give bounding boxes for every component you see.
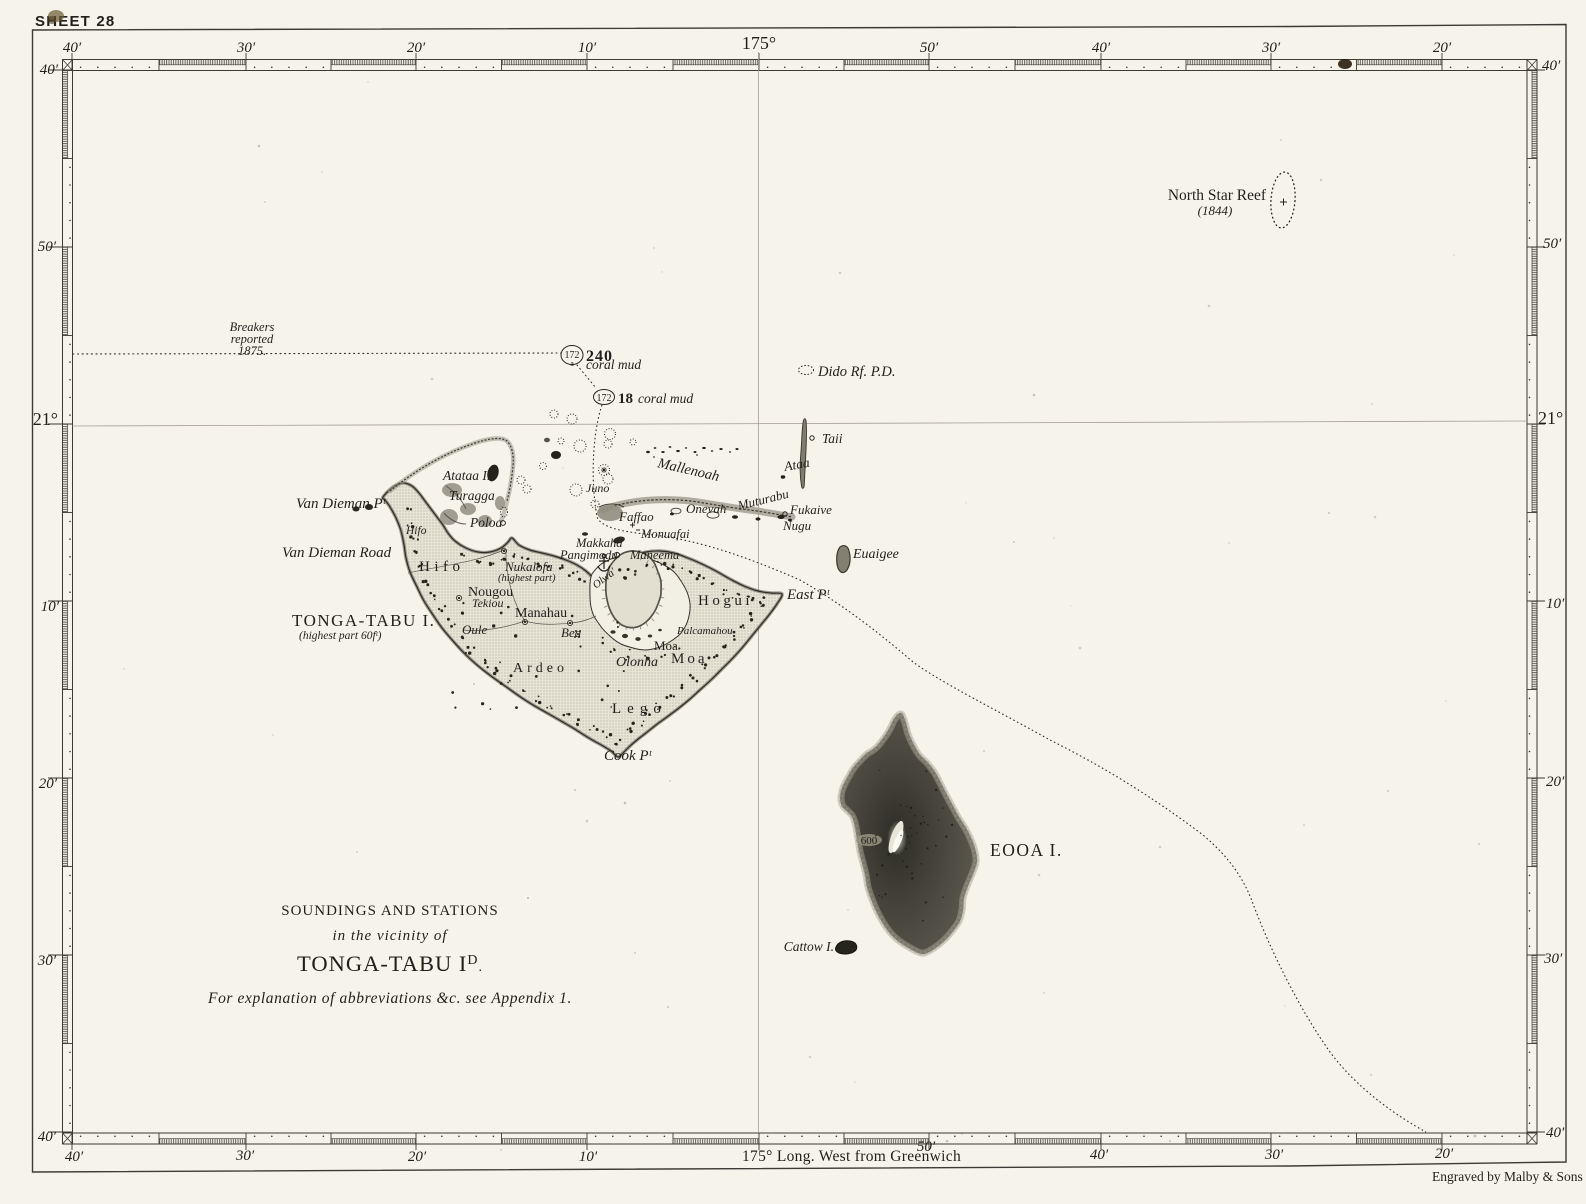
svg-text:Onevah: Onevah bbox=[686, 501, 726, 516]
svg-text:21°: 21° bbox=[1538, 408, 1563, 428]
svg-text:(1844): (1844) bbox=[1198, 203, 1233, 218]
svg-text:Hogui: Hogui bbox=[698, 593, 753, 609]
svg-text:Monuafai: Monuafai bbox=[640, 527, 690, 541]
svg-text:(highest part 60fᵗ): (highest part 60fᵗ) bbox=[299, 630, 382, 642]
svg-text:Engraved by Malby & Sons: Engraved by Malby & Sons bbox=[1432, 1169, 1583, 1184]
svg-text:40′: 40′ bbox=[1546, 1125, 1565, 1141]
svg-text:50′: 50′ bbox=[1543, 236, 1562, 252]
svg-text:18: 18 bbox=[618, 391, 633, 407]
svg-text:20′: 20′ bbox=[1433, 40, 1452, 56]
svg-text:30′: 30′ bbox=[37, 953, 57, 969]
svg-text:Van Dieman Pᵗ: Van Dieman Pᵗ bbox=[296, 496, 387, 512]
svg-text:20′: 20′ bbox=[408, 1149, 427, 1165]
svg-text:Turagga: Turagga bbox=[449, 488, 495, 503]
svg-text:coral mud: coral mud bbox=[638, 391, 693, 406]
svg-text:10′: 10′ bbox=[578, 40, 597, 56]
svg-text:Makkaha: Makkaha bbox=[575, 536, 623, 550]
svg-text:Faffao: Faffao bbox=[618, 509, 654, 524]
svg-text:40′: 40′ bbox=[1542, 58, 1561, 74]
svg-text:30′: 30′ bbox=[1543, 951, 1563, 967]
svg-text:East Pᵗ: East Pᵗ bbox=[786, 587, 831, 603]
svg-text:Fukaive: Fukaive bbox=[789, 502, 832, 517]
svg-text:21°: 21° bbox=[33, 409, 58, 429]
svg-text:20′: 20′ bbox=[39, 776, 58, 792]
svg-text:50′: 50′ bbox=[38, 239, 57, 255]
svg-text:10′: 10′ bbox=[41, 599, 60, 615]
svg-text:Maneema: Maneema bbox=[629, 548, 679, 562]
svg-text:in the vicinity of: in the vicinity of bbox=[332, 928, 448, 944]
svg-text:TONGA-TABU I.: TONGA-TABU I. bbox=[292, 611, 435, 630]
svg-text:Euaigee: Euaigee bbox=[852, 547, 899, 562]
svg-text:a: a bbox=[570, 359, 574, 368]
svg-text:TONGA-TABU ID.: TONGA-TABU ID. bbox=[297, 951, 483, 976]
svg-text:40′: 40′ bbox=[38, 1129, 57, 1145]
svg-text:30′: 30′ bbox=[1261, 40, 1281, 56]
svg-text:20′: 20′ bbox=[1546, 774, 1565, 790]
svg-text:coral mud: coral mud bbox=[586, 357, 641, 372]
svg-text:30′: 30′ bbox=[236, 40, 256, 56]
svg-text:40′: 40′ bbox=[65, 1149, 84, 1165]
svg-text:600: 600 bbox=[861, 835, 878, 847]
svg-text:SHEET 28: SHEET 28 bbox=[35, 13, 115, 30]
svg-text:175°: 175° bbox=[742, 33, 776, 53]
svg-text:40′: 40′ bbox=[40, 62, 59, 78]
svg-text:Ardeo: Ardeo bbox=[513, 661, 568, 676]
svg-text:Taii: Taii bbox=[822, 431, 843, 446]
svg-text:30′: 30′ bbox=[235, 1148, 255, 1164]
svg-text:Nugu: Nugu bbox=[782, 518, 812, 533]
svg-text:40′: 40′ bbox=[1090, 1147, 1109, 1163]
svg-text:Hifo: Hifo bbox=[405, 525, 427, 537]
svg-text:Nukalofa: Nukalofa bbox=[504, 559, 553, 574]
svg-text:Moa: Moa bbox=[671, 651, 708, 667]
svg-text:40′: 40′ bbox=[63, 40, 82, 56]
svg-text:Pangimodu: Pangimodu bbox=[559, 548, 618, 562]
svg-text:50′: 50′ bbox=[920, 40, 939, 56]
svg-text:Bea: Bea bbox=[561, 625, 582, 640]
svg-text:For explanation of abbreviatio: For explanation of abbreviations &c. see… bbox=[207, 990, 572, 1007]
svg-text:EOOA I.: EOOA I. bbox=[990, 840, 1063, 860]
svg-text:10′: 10′ bbox=[579, 1149, 598, 1165]
svg-text:20′: 20′ bbox=[407, 40, 426, 56]
svg-text:Juno: Juno bbox=[586, 481, 609, 495]
svg-text:Cook Pᵗ: Cook Pᵗ bbox=[604, 748, 653, 764]
svg-text:(highest part): (highest part) bbox=[498, 573, 556, 584]
svg-text:Lego: Lego bbox=[612, 701, 667, 717]
svg-text:Olonha: Olonha bbox=[616, 655, 658, 670]
svg-text:Poloa: Poloa bbox=[469, 515, 502, 530]
svg-text:Cattow I.: Cattow I. bbox=[784, 939, 834, 954]
svg-text:10′: 10′ bbox=[1546, 596, 1565, 612]
svg-text:20′: 20′ bbox=[1435, 1146, 1454, 1162]
svg-text:Hifo: Hifo bbox=[419, 559, 465, 575]
svg-text:30′: 30′ bbox=[1264, 1147, 1284, 1163]
svg-text:Tekiou: Tekiou bbox=[472, 596, 504, 610]
svg-text:North Star Reef: North Star Reef bbox=[1168, 187, 1267, 204]
svg-text:Van Dieman Road: Van Dieman Road bbox=[282, 545, 392, 561]
svg-text:1875.: 1875. bbox=[238, 344, 266, 358]
svg-text:Dido Rf. P.D.: Dido Rf. P.D. bbox=[817, 364, 895, 380]
svg-text:Oule: Oule bbox=[462, 622, 488, 637]
svg-text:Atataa I.: Atataa I. bbox=[442, 468, 490, 483]
svg-text:172: 172 bbox=[597, 393, 612, 404]
svg-text:175° Long. West from Greenwich: 175° Long. West from Greenwich bbox=[742, 1148, 961, 1165]
svg-text:40′: 40′ bbox=[1092, 40, 1111, 56]
svg-text:Manahau: Manahau bbox=[515, 606, 567, 621]
svg-text:Palcamahou: Palcamahou bbox=[676, 625, 733, 637]
svg-text:SOUNDINGS AND STATIONS: SOUNDINGS AND STATIONS bbox=[281, 903, 498, 919]
